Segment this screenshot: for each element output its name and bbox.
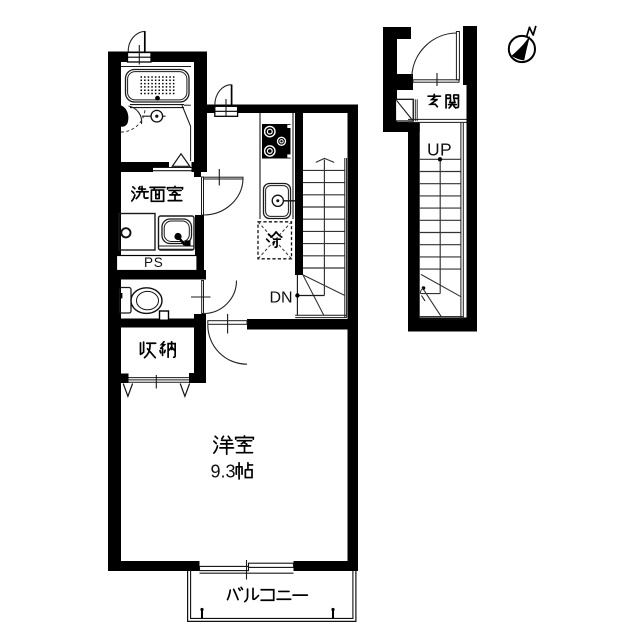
svg-text:9.3: 9.3 xyxy=(211,462,236,482)
svg-text:PS: PS xyxy=(144,255,164,270)
svg-text:UP: UP xyxy=(427,140,452,160)
svg-text:DN: DN xyxy=(270,290,293,307)
